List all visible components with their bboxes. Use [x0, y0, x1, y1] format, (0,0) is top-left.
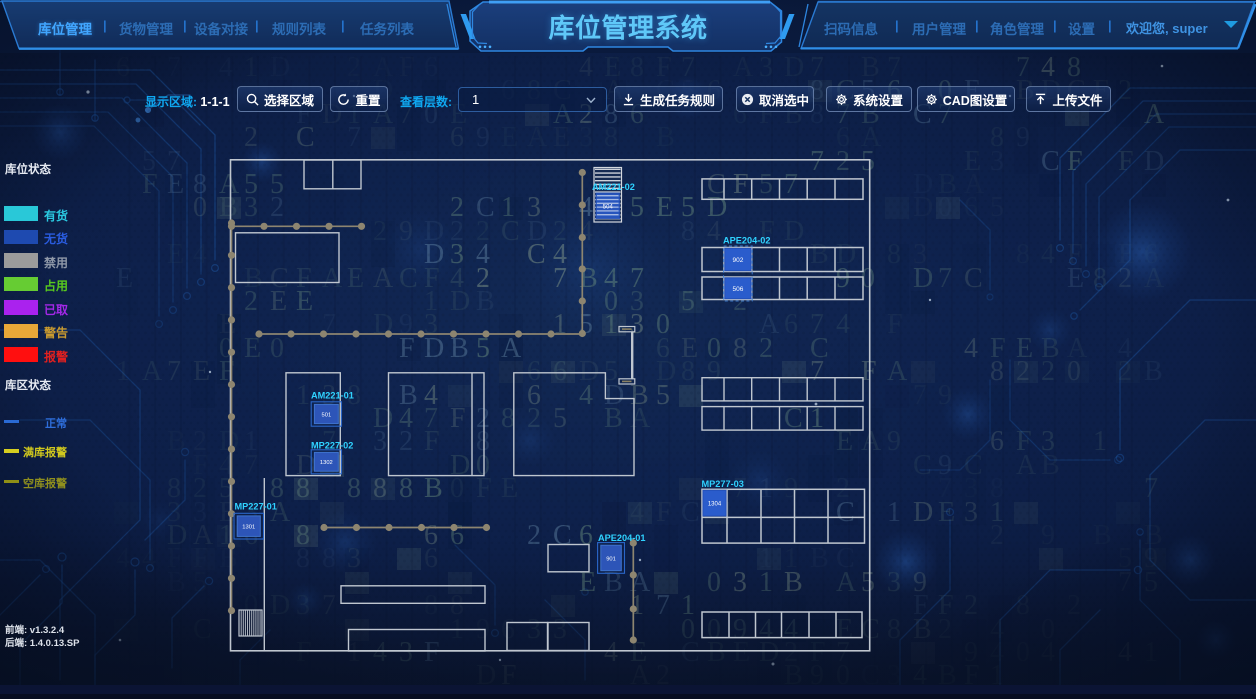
svg-text:902: 902 [732, 257, 743, 264]
svg-text:AM221-01: AM221-01 [311, 391, 354, 401]
svg-text:AM221-02: AM221-02 [592, 182, 635, 192]
svg-text:MP227-01: MP227-01 [235, 502, 277, 512]
svg-text:MP277-03: MP277-03 [702, 479, 744, 489]
svg-text:APE204-01: APE204-01 [598, 533, 646, 543]
svg-text:1301: 1301 [242, 525, 255, 531]
svg-text:504: 504 [603, 204, 614, 210]
svg-text:506: 506 [732, 286, 743, 293]
svg-text:1302: 1302 [320, 460, 333, 466]
svg-text:901: 901 [606, 556, 616, 562]
svg-text:APE204-02: APE204-02 [723, 236, 771, 246]
svg-text:MP227-02: MP227-02 [311, 440, 353, 450]
svg-text:501: 501 [322, 412, 332, 418]
svg-text:1304: 1304 [708, 502, 722, 508]
